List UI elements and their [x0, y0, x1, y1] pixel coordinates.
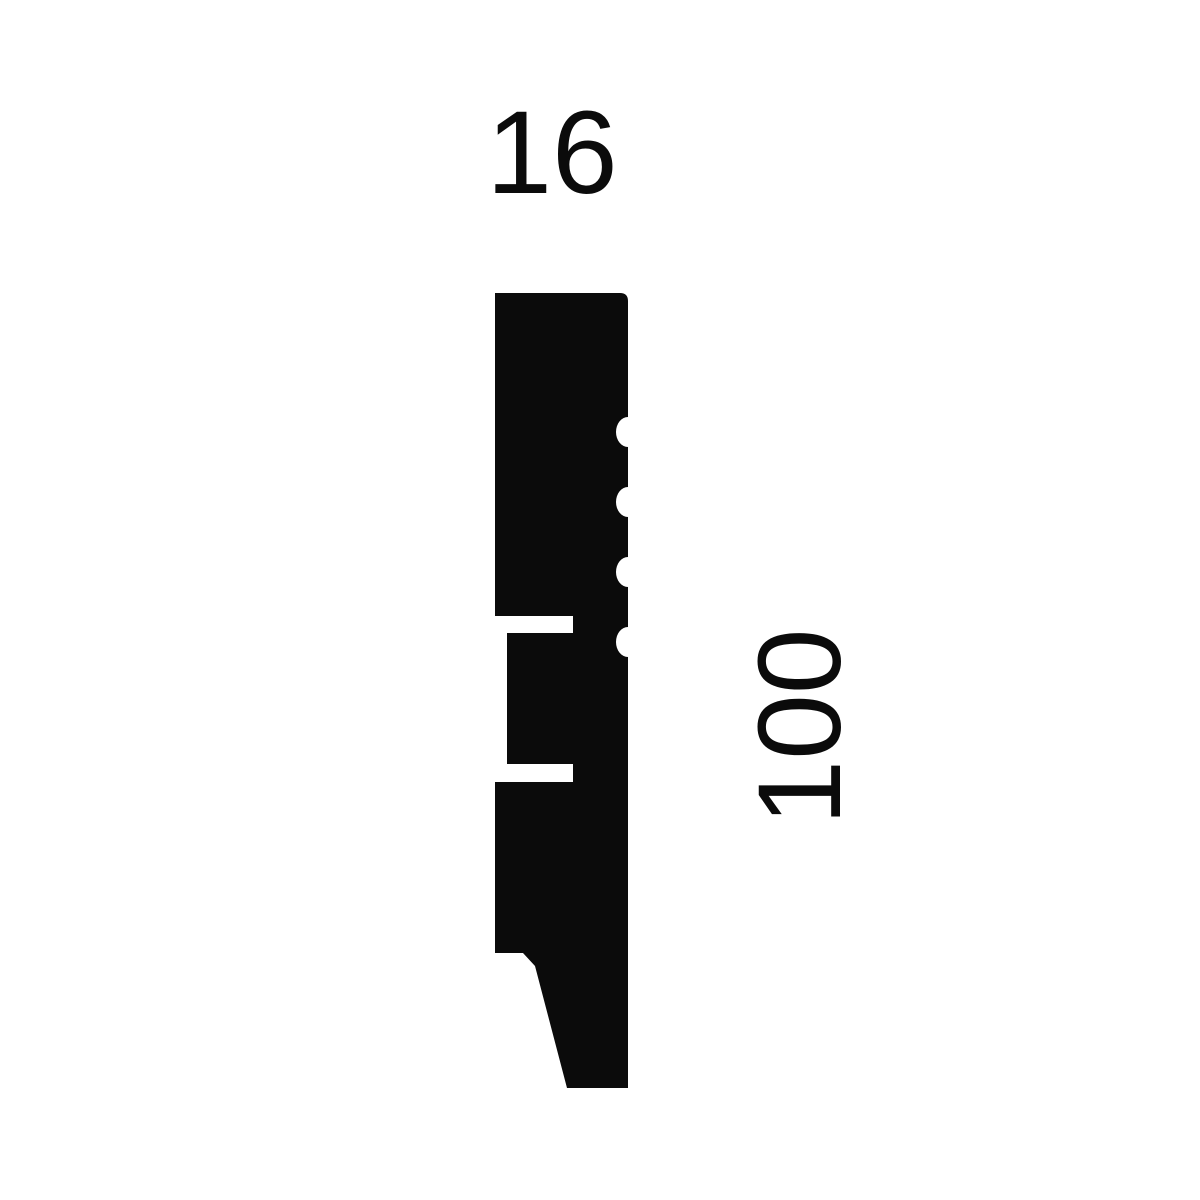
- drawing-canvas: 16 100: [0, 0, 1200, 1200]
- profile-diagram: 16 100: [0, 0, 1200, 1200]
- height-dimension-label: 100: [734, 629, 866, 826]
- width-dimension-label: 16: [486, 87, 617, 219]
- profile-shape: [495, 293, 628, 1088]
